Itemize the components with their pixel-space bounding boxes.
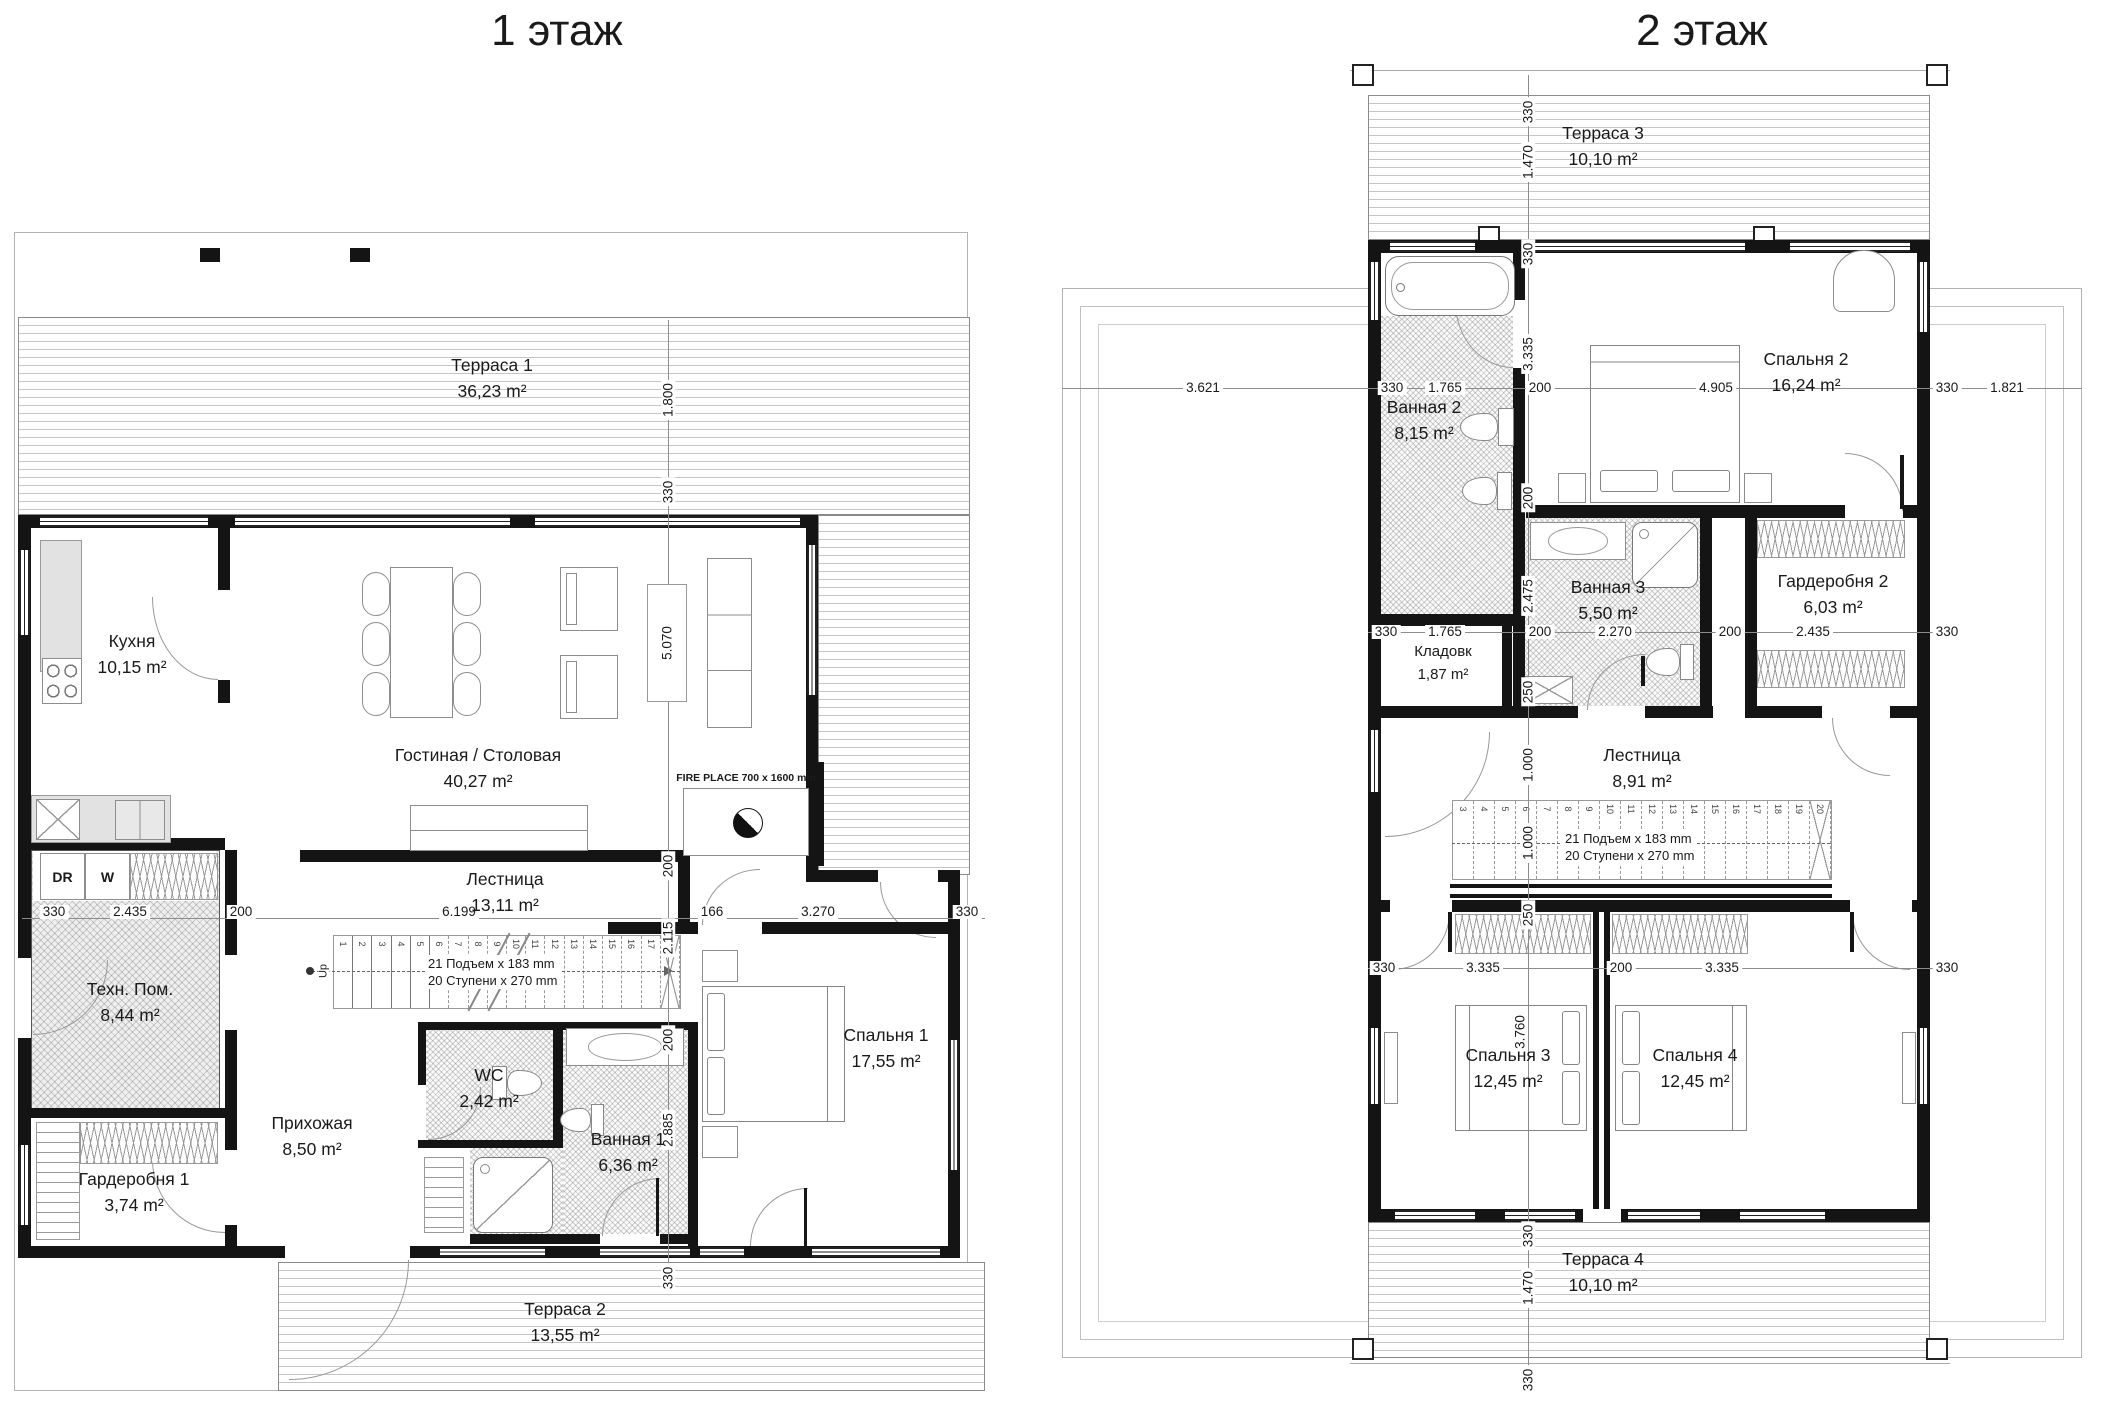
room-area: 13,11 m² bbox=[466, 892, 543, 918]
kitchen-sink bbox=[36, 799, 80, 840]
window bbox=[1395, 1210, 1475, 1221]
entry-door-gap bbox=[18, 958, 31, 1038]
toilet bbox=[1460, 408, 1514, 446]
room-area: 8,15 m² bbox=[1387, 420, 1462, 446]
pillow bbox=[1562, 1011, 1580, 1065]
bathtub bbox=[1385, 256, 1515, 316]
stair-tread: 3 bbox=[1453, 801, 1474, 879]
armchair bbox=[1833, 250, 1895, 312]
wall bbox=[762, 922, 948, 934]
room-area: 40,27 m² bbox=[395, 768, 561, 794]
room-label-bedroom3: Спальня 312,45 m² bbox=[1466, 1042, 1551, 1094]
room-label-wardrobe1: Гардеробня 13,74 m² bbox=[79, 1166, 190, 1218]
wall bbox=[1368, 706, 1525, 718]
door-leaf bbox=[804, 1188, 807, 1246]
pillow bbox=[707, 1057, 725, 1115]
room-name: Лестница bbox=[1603, 742, 1680, 768]
terrace-post bbox=[1352, 1338, 1374, 1360]
dim-label: 330 bbox=[1521, 98, 1535, 127]
washer: W bbox=[85, 853, 130, 900]
room-area: 12,45 m² bbox=[1653, 1068, 1738, 1094]
room-label-bath2: Ванная 28,15 m² bbox=[1387, 394, 1462, 446]
wall bbox=[300, 850, 690, 862]
window bbox=[1369, 730, 1380, 792]
wall bbox=[1593, 900, 1599, 1209]
wall bbox=[678, 858, 690, 926]
wc-door-gap bbox=[418, 1085, 426, 1140]
window bbox=[812, 1247, 940, 1257]
dim-label: 250 bbox=[1521, 678, 1535, 707]
stair-note: 21 Подъем x 183 mm20 Ступени x 270 mm bbox=[425, 955, 560, 989]
door-leaf bbox=[1448, 912, 1452, 952]
dim-label: 330 bbox=[1933, 381, 1962, 395]
window bbox=[1918, 262, 1929, 332]
tech-door-gap bbox=[225, 955, 237, 1030]
room-area: 17,55 m² bbox=[844, 1048, 929, 1074]
window bbox=[19, 1145, 30, 1225]
stair-tread: 3 bbox=[372, 936, 391, 1008]
room-name: Техн. Пом. bbox=[87, 976, 173, 1002]
wall bbox=[688, 1022, 698, 1246]
room-name: Кухня bbox=[97, 628, 166, 654]
terrace-post bbox=[200, 248, 220, 262]
wardrobe2-door-gap bbox=[1822, 706, 1890, 718]
stair-tread: 19 bbox=[1789, 801, 1810, 879]
stair-tread: 20 bbox=[1810, 801, 1831, 879]
dim-label: 1.765 bbox=[1425, 625, 1465, 639]
shower bbox=[473, 1157, 553, 1233]
room-area: 16,24 m² bbox=[1764, 372, 1849, 398]
tv-console bbox=[410, 805, 588, 851]
window bbox=[235, 516, 510, 527]
dim-label: 1.470 bbox=[1521, 1268, 1535, 1308]
dim-label: 200 bbox=[1526, 625, 1555, 639]
dim-label: 330 bbox=[1521, 1366, 1535, 1395]
dim-line bbox=[1368, 968, 1958, 969]
dim-label: 200 bbox=[661, 852, 675, 881]
dim-line bbox=[22, 918, 985, 919]
room-area: 36,23 m² bbox=[451, 378, 533, 404]
stair-tread: 4 bbox=[1474, 801, 1495, 879]
stair-tread: 18 bbox=[1768, 801, 1789, 879]
wardrobe-closet bbox=[1612, 914, 1748, 954]
room-area: 6,36 m² bbox=[591, 1152, 666, 1178]
floor2-title: 2 этаж bbox=[1636, 6, 1768, 56]
window bbox=[1505, 1210, 1575, 1221]
door-leaf bbox=[1641, 656, 1645, 686]
window bbox=[19, 550, 30, 635]
armchair bbox=[560, 655, 618, 719]
room-label-living: Гостиная / Столовая40,27 m² bbox=[395, 742, 561, 794]
dim-label: 1.000 bbox=[1521, 745, 1535, 785]
dim-label: 330 bbox=[1372, 625, 1401, 639]
stair-note-line1: 21 Подъем x 183 mm bbox=[428, 956, 555, 971]
door-leaf bbox=[656, 1178, 659, 1236]
room-area: 13,55 m² bbox=[524, 1322, 606, 1348]
bedroom4-door-gap bbox=[1850, 900, 1912, 912]
window bbox=[807, 545, 817, 695]
room-label-terrace2: Терраса 213,55 m² bbox=[524, 1296, 606, 1348]
room-name: Терраса 1 bbox=[451, 352, 533, 378]
stair-start-dot bbox=[306, 967, 314, 975]
room-name: WC bbox=[459, 1062, 518, 1088]
dim-label: 4.905 bbox=[1696, 381, 1736, 395]
room-label-stairs2: Лестница8,91 m² bbox=[1603, 742, 1680, 794]
floor1-title: 1 этаж bbox=[491, 6, 623, 56]
room-name: Спальня 3 bbox=[1466, 1042, 1551, 1068]
shelves bbox=[36, 1122, 80, 1240]
dim-label: 2.115 bbox=[661, 919, 675, 958]
dim-label: 330 bbox=[1933, 961, 1962, 975]
window bbox=[1628, 1210, 1700, 1221]
dim-label: 2.435 bbox=[110, 905, 150, 919]
room-label-wc: WC2,42 m² bbox=[459, 1062, 518, 1114]
room-name: Терраса 2 bbox=[524, 1296, 606, 1322]
room-name: Ванная 2 bbox=[1387, 394, 1462, 420]
room-name: Гардеробня 1 bbox=[79, 1166, 190, 1192]
stair-tread: 1 bbox=[334, 936, 353, 1008]
dim-label: 1.765 bbox=[1425, 381, 1465, 395]
room-area: 8,50 m² bbox=[271, 1136, 352, 1162]
stair-tread: 17 bbox=[1747, 801, 1768, 879]
dim-label: 3.621 bbox=[1183, 381, 1223, 395]
wall bbox=[1604, 900, 1610, 1209]
dim-label: 200 bbox=[1716, 625, 1745, 639]
dining-table bbox=[390, 567, 453, 718]
room-name: Терраса 4 bbox=[1562, 1246, 1644, 1272]
stair-tread: 14 bbox=[584, 936, 603, 1008]
pillow bbox=[1622, 1011, 1640, 1065]
dim-label: 330 bbox=[1378, 381, 1407, 395]
stair-tread: 13 bbox=[565, 936, 584, 1008]
room-area: 1,87 m² bbox=[1414, 663, 1471, 686]
stair-tread: 5 bbox=[1495, 801, 1516, 879]
chair bbox=[362, 672, 390, 716]
room-name: Спальня 4 bbox=[1653, 1042, 1738, 1068]
stair-tread: 15 bbox=[603, 936, 622, 1008]
room-name: Гардеробня 2 bbox=[1778, 568, 1889, 594]
window bbox=[700, 1247, 744, 1257]
room-name: Кладовк bbox=[1414, 640, 1471, 663]
cooktop bbox=[42, 658, 82, 704]
chair bbox=[362, 622, 390, 666]
stair-tread: 2 bbox=[353, 936, 372, 1008]
stair-tread: 16 bbox=[622, 936, 641, 1008]
room-area: 3,74 m² bbox=[79, 1192, 190, 1218]
stair-note: 21 Подъем x 183 mm20 Ступени x 270 mm bbox=[1562, 830, 1697, 864]
kitchen-appliance bbox=[115, 800, 165, 840]
room-area: 6,03 m² bbox=[1778, 594, 1889, 620]
dryer: DR bbox=[40, 853, 85, 900]
wall bbox=[418, 1140, 563, 1148]
room-label-tech: Техн. Пом.8,44 m² bbox=[87, 976, 173, 1028]
window bbox=[949, 1040, 959, 1170]
deck-door-gap bbox=[878, 870, 938, 882]
room-area: 8,44 m² bbox=[87, 1002, 173, 1028]
room-label-terrace3: Терраса 310,10 m² bbox=[1562, 120, 1644, 172]
window bbox=[1369, 262, 1380, 320]
dim-label: 2.270 bbox=[1595, 625, 1635, 639]
room-label-stairs1: Лестница13,11 m² bbox=[466, 866, 543, 918]
wall bbox=[1368, 900, 1930, 912]
window bbox=[440, 1247, 545, 1257]
wall bbox=[1700, 518, 1712, 718]
hanging-rail bbox=[80, 1122, 218, 1164]
terrace1-deck bbox=[18, 317, 970, 515]
pillow bbox=[1562, 1071, 1580, 1125]
dim-label: 330 bbox=[661, 1264, 675, 1293]
window bbox=[600, 1247, 690, 1257]
room-label-bedroom4: Спальня 412,45 m² bbox=[1653, 1042, 1738, 1094]
canopy-line bbox=[1350, 70, 1950, 71]
window bbox=[1918, 1028, 1929, 1104]
room-area: 2,42 m² bbox=[459, 1088, 518, 1114]
room-area: 8,91 m² bbox=[1603, 768, 1680, 794]
stair-tread: 4 bbox=[392, 936, 411, 1008]
wall bbox=[608, 922, 698, 934]
stair-tread: 7 bbox=[1537, 801, 1558, 879]
room-label-terrace4: Терраса 410,10 m² bbox=[1562, 1246, 1644, 1298]
dim-label: 3.335 bbox=[1702, 961, 1742, 975]
hanging-rail bbox=[1757, 650, 1905, 688]
room-name: Ванная 3 bbox=[1571, 574, 1646, 600]
nightstand bbox=[702, 1126, 738, 1158]
room-label-bath3: Ванная 35,50 m² bbox=[1571, 574, 1646, 626]
terrace-post bbox=[350, 248, 370, 262]
hanging-rail bbox=[1757, 520, 1905, 558]
terrace3-deck bbox=[1368, 95, 1930, 240]
wall-shelf bbox=[1902, 1032, 1916, 1104]
stair-note-line2: 20 Ступени x 270 mm bbox=[1565, 848, 1694, 863]
bedroom3-door-gap bbox=[1390, 900, 1452, 912]
dim-label: 330 bbox=[953, 905, 982, 919]
room-area: 5,50 m² bbox=[1571, 600, 1646, 626]
window bbox=[1790, 241, 1910, 252]
wall bbox=[1450, 894, 1832, 898]
window bbox=[1390, 241, 1475, 252]
pillow bbox=[1600, 470, 1658, 492]
terrace-post bbox=[1352, 64, 1374, 86]
room-name: Лестница bbox=[466, 866, 543, 892]
wall bbox=[470, 1234, 696, 1244]
nightstand bbox=[1744, 473, 1772, 503]
chair bbox=[453, 572, 481, 616]
dim-label: 2.475 bbox=[1521, 576, 1535, 616]
wall-shelf bbox=[1384, 1032, 1398, 1104]
dim-label: 200 bbox=[661, 1026, 675, 1055]
sofa bbox=[707, 558, 752, 728]
wall bbox=[1450, 884, 1832, 888]
fireplace-label: FIRE PLACE 700 x 1600 mm bbox=[676, 772, 815, 784]
nightstand bbox=[1558, 473, 1586, 503]
room-label-bath1: Ванная 16,36 m² bbox=[591, 1126, 666, 1178]
room-name: Ванная 1 bbox=[591, 1126, 666, 1152]
kitchen-counter bbox=[40, 540, 82, 672]
dim-label: 166 bbox=[698, 905, 727, 919]
window bbox=[40, 516, 208, 527]
pillow bbox=[707, 993, 725, 1051]
dim-label: 1.821 bbox=[1987, 381, 2027, 395]
dim-label: 330 bbox=[1933, 625, 1962, 639]
dim-label: 200 bbox=[1526, 381, 1555, 395]
wall bbox=[1745, 518, 1757, 718]
wall bbox=[31, 1108, 225, 1118]
room-area: 10,10 m² bbox=[1562, 1272, 1644, 1298]
dim-label: 2.435 bbox=[1793, 625, 1833, 639]
room-name: Гостиная / Столовая bbox=[395, 742, 561, 768]
stair-tread: 16 bbox=[1726, 801, 1747, 879]
chair bbox=[362, 572, 390, 616]
bidet bbox=[1462, 472, 1512, 510]
room-label-kitchen: Кухня10,15 m² bbox=[97, 628, 166, 680]
room-area: 12,45 m² bbox=[1466, 1068, 1551, 1094]
dim-label: 330 bbox=[40, 905, 69, 919]
terrace4-deck bbox=[1368, 1222, 1930, 1358]
terrace4-door-gap bbox=[1583, 1209, 1621, 1222]
wall bbox=[1502, 614, 1512, 718]
dim-label: 200 bbox=[227, 905, 256, 919]
dim-label: 330 bbox=[1521, 240, 1535, 269]
nightstand bbox=[702, 950, 738, 982]
dim-label: 5.070 bbox=[660, 623, 674, 663]
room-area: 10,10 m² bbox=[1562, 146, 1644, 172]
dim-label: 200 bbox=[1607, 961, 1636, 975]
room-label-bedroom2: Спальня 216,24 m² bbox=[1764, 346, 1849, 398]
window bbox=[1740, 1210, 1825, 1221]
room-label-bedroom1: Спальня 117,55 m² bbox=[844, 1022, 929, 1074]
stair-note-line2: 20 Ступени x 270 mm bbox=[428, 973, 557, 988]
wardrobe1-door-gap bbox=[225, 1150, 237, 1225]
east-deck bbox=[818, 515, 970, 875]
bath-shelf bbox=[424, 1157, 464, 1233]
chair bbox=[453, 672, 481, 716]
room-label-wardrobe2: Гардеробня 26,03 m² bbox=[1778, 568, 1889, 620]
room-name: Спальня 2 bbox=[1764, 346, 1849, 372]
dim-line bbox=[1528, 75, 1529, 1390]
room-label-storage: Кладовк1,87 m² bbox=[1414, 640, 1471, 686]
kitchen-door-gap bbox=[218, 590, 230, 680]
dim-label: 250 bbox=[1521, 901, 1535, 930]
dim-label: 1.800 bbox=[661, 380, 675, 420]
pillow bbox=[1622, 1071, 1640, 1125]
window bbox=[1369, 1028, 1380, 1104]
toilet bbox=[1646, 644, 1694, 680]
room-label-hallway: Прихожая8,50 m² bbox=[271, 1110, 352, 1162]
dim-label: 1.470 bbox=[1521, 142, 1535, 182]
chair bbox=[453, 622, 481, 666]
window bbox=[1530, 241, 1745, 252]
canopy-line bbox=[1350, 1363, 1950, 1364]
room-name: Терраса 3 bbox=[1562, 120, 1644, 146]
room-area: 10,15 m² bbox=[97, 654, 166, 680]
stair-up-label: Up bbox=[319, 961, 330, 981]
dim-label: 3.335 bbox=[1521, 334, 1535, 374]
hanging-rail bbox=[130, 853, 218, 900]
terrace-post bbox=[1926, 64, 1948, 86]
door-leaf bbox=[1850, 912, 1854, 952]
terrace-door-gap bbox=[285, 1246, 410, 1258]
room-name: Прихожая bbox=[271, 1110, 352, 1136]
room-name: Спальня 1 bbox=[844, 1022, 929, 1048]
stair-note-line1: 21 Подъем x 183 mm bbox=[1565, 831, 1692, 846]
door-leaf bbox=[1900, 455, 1904, 509]
pillow bbox=[1672, 470, 1730, 492]
dim-label: 200 bbox=[1521, 484, 1535, 513]
armchair bbox=[560, 567, 618, 631]
terrace-post bbox=[1926, 1338, 1948, 1360]
sink bbox=[1530, 522, 1626, 560]
dim-label: 3.270 bbox=[798, 905, 838, 919]
room-label-terrace1: Терраса 136,23 m² bbox=[451, 352, 533, 404]
stair-tread: 17 bbox=[642, 936, 661, 1008]
dim-label: 330 bbox=[1370, 961, 1399, 975]
dim-label: 330 bbox=[661, 478, 675, 507]
stair-tread: 15 bbox=[1705, 801, 1726, 879]
dim-label: 1.000 bbox=[1521, 823, 1535, 863]
dim-label: 330 bbox=[1521, 1222, 1535, 1251]
dim-label: 3.335 bbox=[1463, 961, 1503, 975]
fireplace-symbol-icon bbox=[733, 808, 763, 838]
